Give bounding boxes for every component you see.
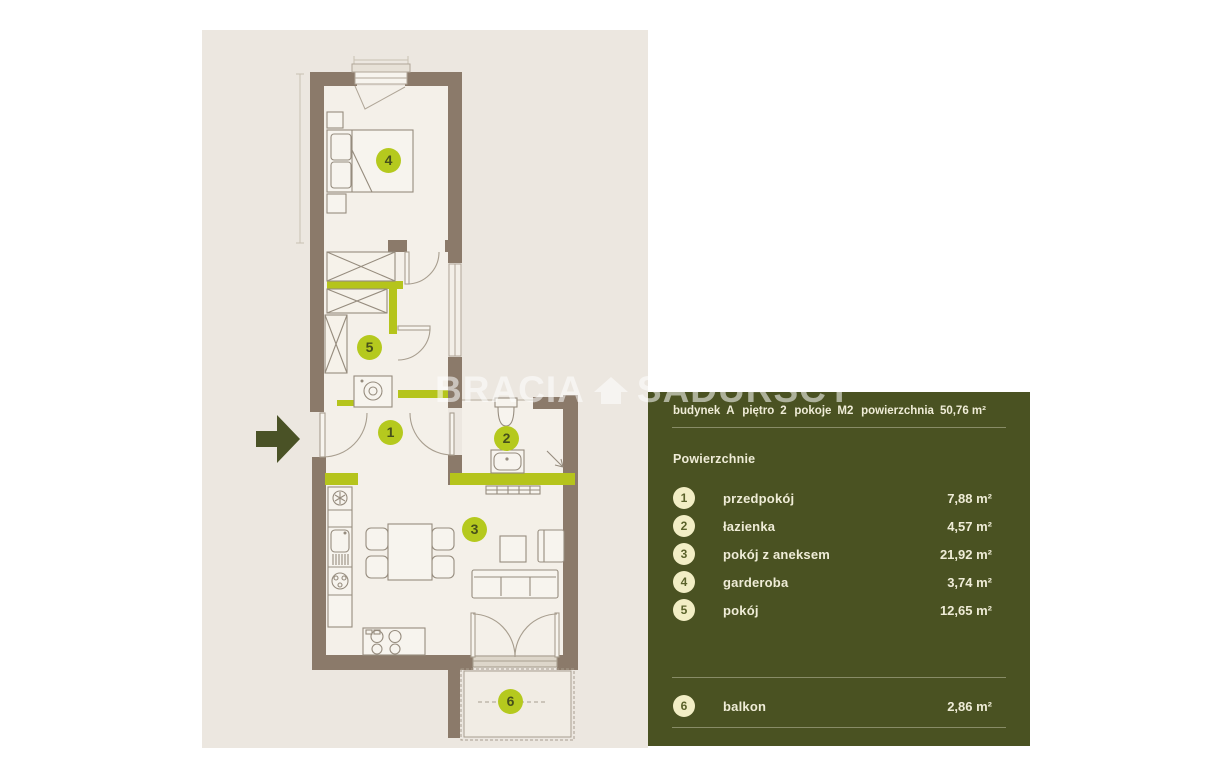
room-name: przedpokój bbox=[723, 491, 794, 506]
divider bbox=[672, 727, 1006, 728]
room-name: łazienka bbox=[723, 519, 775, 534]
room-number-badge: 3 bbox=[673, 543, 695, 565]
kitchen-counter bbox=[328, 487, 352, 627]
info-panel: budynekA piętro2 pokojeM2 powierzchnia50… bbox=[648, 392, 1030, 746]
room-row-4: 4 garderoba 3,74 m² bbox=[648, 568, 1030, 596]
entry-arrow-icon bbox=[256, 415, 300, 463]
floor-plan: 1 2 3 4 5 6 bbox=[202, 30, 648, 748]
radiator bbox=[486, 486, 540, 494]
plan-room-badge-5: 5 bbox=[357, 335, 382, 360]
room-list: 1 przedpokój 7,88 m² 2 łazienka 4,57 m² … bbox=[648, 484, 1030, 624]
areas-section-title: Powierzchnie bbox=[673, 452, 1030, 466]
room-row-5: 5 pokój 12,65 m² bbox=[648, 596, 1030, 624]
plan-room-badge-4: 4 bbox=[376, 148, 401, 173]
room-row-6: 6 balkon 2,86 m² bbox=[648, 692, 1030, 720]
balcony-door-left bbox=[471, 613, 475, 657]
divider bbox=[672, 677, 1006, 678]
room-area: 21,92 m² bbox=[940, 547, 992, 562]
stove bbox=[363, 628, 425, 655]
room-number-badge: 5 bbox=[673, 599, 695, 621]
floor-plan-drawing bbox=[202, 30, 648, 748]
washbasin bbox=[491, 450, 524, 473]
room-row-3: 3 pokój z aneksem 21,92 m² bbox=[648, 540, 1030, 568]
room-number-badge: 4 bbox=[673, 571, 695, 593]
armchair bbox=[538, 530, 564, 562]
rooms-field: pokojeM2 bbox=[794, 405, 853, 417]
nightstand bbox=[327, 194, 346, 213]
room-area: 2,86 m² bbox=[947, 699, 992, 714]
washing-machine bbox=[354, 376, 392, 407]
window-sill bbox=[352, 64, 410, 72]
plan-room-badge-3: 3 bbox=[462, 517, 487, 542]
room-area: 7,88 m² bbox=[947, 491, 992, 506]
room-area: 4,57 m² bbox=[947, 519, 992, 534]
unit-summary: budynekA piętro2 pokojeM2 powierzchnia50… bbox=[648, 392, 1030, 417]
room-row-1: 1 przedpokój 7,88 m² bbox=[648, 484, 1030, 512]
plan-room-badge-6: 6 bbox=[498, 689, 523, 714]
room-area: 3,74 m² bbox=[947, 575, 992, 590]
room-name: pokój z aneksem bbox=[723, 547, 830, 562]
room-number-badge: 2 bbox=[673, 515, 695, 537]
plan-room-badge-1: 1 bbox=[378, 420, 403, 445]
room-area: 12,65 m² bbox=[940, 603, 992, 618]
room-number-badge: 1 bbox=[673, 487, 695, 509]
room5-door bbox=[398, 326, 430, 330]
nightstand bbox=[327, 112, 343, 128]
room-name: garderoba bbox=[723, 575, 788, 590]
room-number-badge: 6 bbox=[673, 695, 695, 717]
divider bbox=[672, 427, 1006, 428]
room-name: pokój bbox=[723, 603, 759, 618]
floor-field: piętro2 bbox=[742, 405, 786, 417]
plan-room-badge-2: 2 bbox=[494, 426, 519, 451]
sofa bbox=[472, 570, 558, 598]
total-area-field: powierzchnia50,76 m² bbox=[861, 405, 986, 417]
bathroom-door bbox=[450, 413, 454, 455]
balcony-door-right bbox=[555, 613, 559, 657]
entry-door bbox=[320, 413, 325, 457]
bedroom-door bbox=[405, 252, 409, 284]
floorplan-page: 1 2 3 4 5 6 budynekA piętro2 pokojeM2 po… bbox=[0, 0, 1205, 779]
room-row-2: 2 łazienka 4,57 m² bbox=[648, 512, 1030, 540]
building-field: budynekA bbox=[673, 405, 735, 417]
side-table bbox=[500, 536, 526, 562]
room-name: balkon bbox=[723, 699, 766, 714]
